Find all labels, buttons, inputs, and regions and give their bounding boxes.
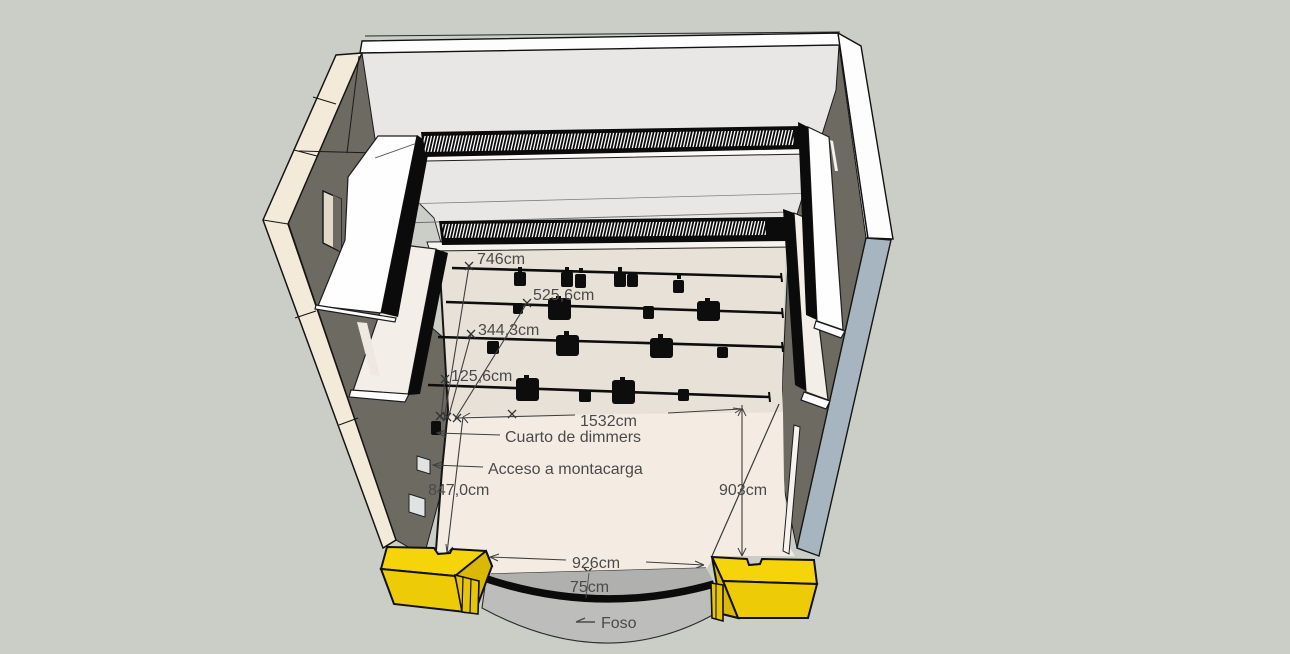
svg-text:1532cm: 1532cm [580, 413, 637, 430]
svg-text:Cuarto de dimmers: Cuarto de dimmers [505, 429, 641, 446]
svg-text:903cm: 903cm [719, 482, 767, 499]
svg-text:125,6cm: 125,6cm [451, 368, 512, 385]
svg-text:Foso: Foso [601, 615, 637, 632]
svg-text:525,6cm: 525,6cm [533, 287, 594, 304]
svg-text:Acceso a montacarga: Acceso a montacarga [488, 461, 643, 478]
svg-text:746cm: 746cm [477, 251, 525, 268]
svg-text:344,3cm: 344,3cm [478, 322, 539, 339]
svg-text:75cm: 75cm [570, 579, 609, 596]
svg-text:847,0cm: 847,0cm [428, 482, 489, 499]
svg-text:926cm: 926cm [572, 555, 620, 572]
